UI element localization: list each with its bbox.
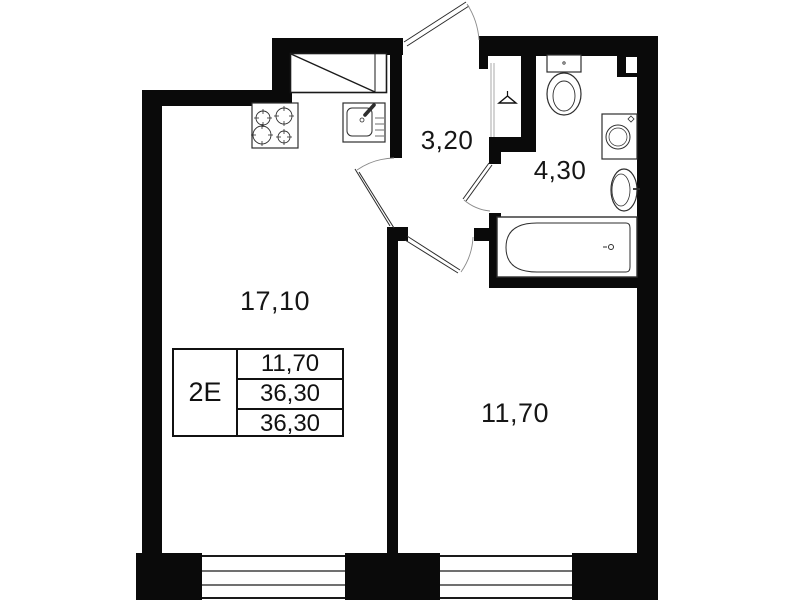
wardrobe-niche-line — [491, 63, 494, 137]
washing-machine-icon — [602, 114, 637, 159]
wall-pier-bottom-left — [136, 553, 202, 600]
wall-stub-bedroom-door-right — [474, 228, 490, 241]
hanger-icon — [499, 91, 516, 103]
living-area-value: 11,70 — [238, 350, 342, 380]
wall-entry-jamb — [479, 56, 488, 69]
wall-bathroom-bottom — [489, 275, 637, 288]
bathroom-sink-icon — [611, 169, 640, 211]
bathtub-icon — [497, 217, 637, 277]
bedroom-door — [405, 236, 473, 273]
wall-pier-bottom-middle — [345, 553, 440, 600]
total-area-value: 36,30 — [238, 380, 342, 410]
area-label-bathroom: 4,30 — [525, 157, 595, 183]
living-room-door — [355, 158, 394, 228]
entrance-door — [404, 2, 479, 46]
wall-stub-bedroom-door-left — [387, 227, 408, 241]
bathroom-door — [463, 163, 492, 211]
overall-area-value: 36,30 — [238, 410, 342, 438]
wall-top-right — [479, 36, 658, 56]
wall-living-bedroom — [387, 241, 398, 553]
wall-left — [142, 90, 162, 553]
window-living-room — [202, 556, 345, 598]
wall-top-left — [142, 90, 290, 106]
wall-kitchen-niche-top — [272, 38, 403, 55]
stove-icon — [251, 103, 298, 148]
kitchen-sink-icon — [343, 103, 385, 142]
apartment-type-label: 2E — [174, 350, 238, 435]
wall-kitchen-hallway — [390, 53, 402, 158]
wall-bathroom-door-jamb — [489, 150, 501, 164]
wall-wardrobe-right — [521, 56, 536, 140]
area-label-bedroom: 11,70 — [470, 400, 560, 427]
apartment-info-table: 2E 11,70 36,30 36,30 — [172, 348, 344, 437]
wall-pier-bottom-right — [572, 553, 658, 600]
floor-plan: 17,10 3,20 4,30 11,70 2E 11,70 36,30 36,… — [0, 0, 799, 600]
area-label-hallway: 3,20 — [412, 127, 482, 153]
area-label-living-kitchen: 17,10 — [230, 288, 320, 315]
apartment-areas: 11,70 36,30 36,30 — [238, 350, 342, 435]
toilet-icon — [547, 55, 581, 115]
vent-shaft-icon — [291, 54, 387, 93]
window-bedroom — [440, 556, 572, 598]
wall-right — [637, 56, 658, 553]
